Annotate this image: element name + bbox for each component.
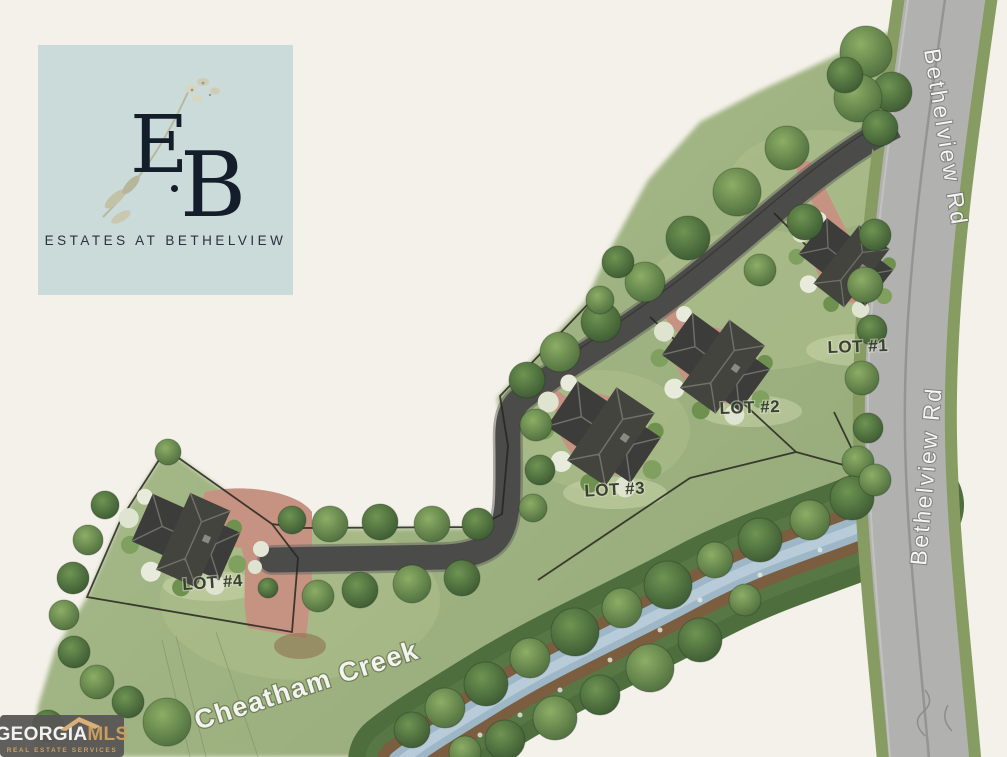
georgiamls-watermark: GEORGIA MLS REAL ESTATE SERVICES bbox=[0, 715, 124, 757]
lot-1-label: LOT #1 bbox=[827, 336, 888, 357]
site-plan-rendering: LOT #1 LOT #2 LOT #3 LOT #4 Bethelview R… bbox=[0, 0, 1007, 757]
watermark-tagline: REAL ESTATE SERVICES bbox=[0, 747, 124, 754]
lot-3-label: LOT #3 bbox=[584, 478, 646, 500]
logo-monogram-b: B bbox=[180, 141, 246, 231]
roof-swoosh-icon bbox=[60, 717, 102, 731]
logo-card: E B ESTATES AT BETHELVIEW bbox=[38, 45, 293, 295]
monogram-dot bbox=[171, 185, 178, 192]
lot-2-label: LOT #2 bbox=[719, 397, 780, 418]
logo-name: ESTATES AT BETHELVIEW bbox=[38, 233, 293, 248]
